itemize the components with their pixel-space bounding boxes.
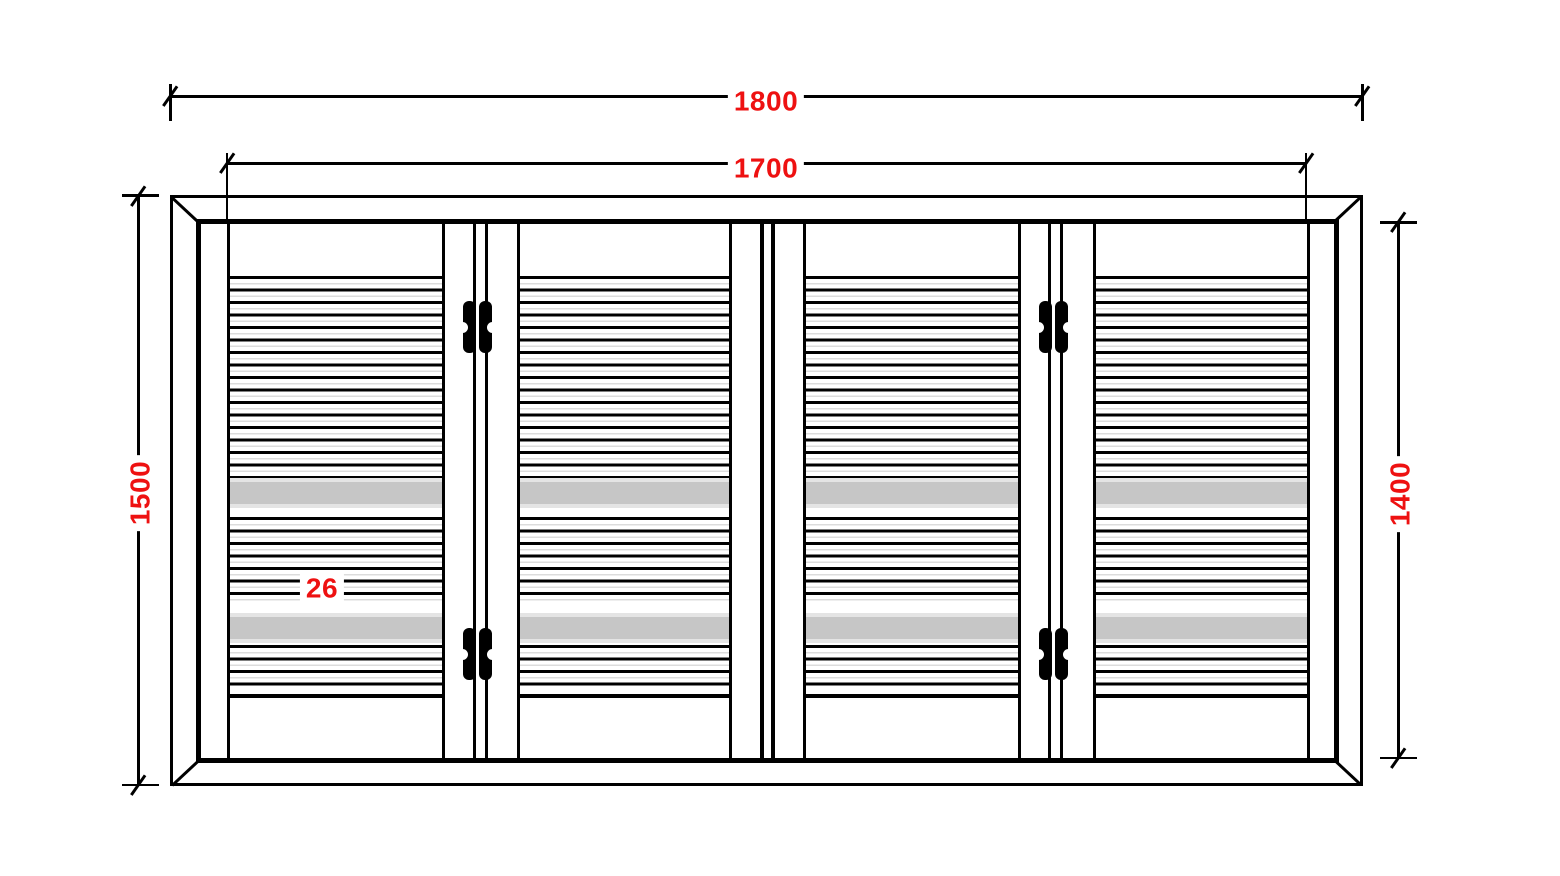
louver-section <box>1096 276 1307 478</box>
panel-stile-line <box>517 219 520 758</box>
shelf-band <box>230 478 442 508</box>
dimension-end-bar <box>1361 84 1364 121</box>
shelf-band <box>520 478 729 508</box>
panel-edge-line <box>771 219 775 758</box>
panel-stile-line <box>227 219 230 758</box>
louver-bottom-rail-line <box>1096 694 1307 698</box>
louver-panel-3-slats <box>806 276 1018 700</box>
shelf-band <box>520 613 729 643</box>
shelf-band <box>1096 613 1307 643</box>
hinge-icon <box>1055 628 1068 680</box>
hinge-icon <box>1039 301 1052 353</box>
window-elevation-drawing: 1800 1700 1500 1400 <box>0 0 1560 876</box>
panel-stile-line <box>729 219 732 758</box>
louver-section <box>806 645 1018 688</box>
louver-section <box>806 517 1018 604</box>
panel-stile-line <box>1307 219 1310 758</box>
louver-section <box>520 645 729 688</box>
panel-stile-line <box>1093 219 1096 758</box>
hinge-icon <box>1055 301 1068 353</box>
dimension-end-bar <box>169 84 172 121</box>
louver-panel-4-slats <box>1096 276 1307 700</box>
shelf-band <box>230 613 442 643</box>
dimension-end-bar <box>122 784 159 787</box>
panel-edge-line <box>760 219 764 758</box>
louver-section <box>230 645 442 688</box>
panel-stile-line <box>803 219 806 758</box>
louver-section <box>520 276 729 478</box>
louver-section <box>520 517 729 604</box>
hinge-icon <box>479 628 492 680</box>
hinge-icon <box>463 301 476 353</box>
louver-bottom-rail-line <box>806 694 1018 698</box>
shelf-band <box>806 613 1018 643</box>
detail-label: 26 <box>300 573 344 602</box>
panel-stile-line <box>442 219 445 758</box>
louver-panel-2-slats <box>520 276 729 700</box>
louver-bottom-rail-line <box>230 694 442 698</box>
louver-section <box>1096 517 1307 604</box>
hinge-icon <box>1039 628 1052 680</box>
panel-stile-line <box>1018 219 1021 758</box>
hinge-icon <box>479 301 492 353</box>
louver-section <box>230 276 442 478</box>
louver-panel-1-slats <box>230 276 442 700</box>
dim-inner-width-label: 1700 <box>728 153 804 182</box>
louver-bottom-rail-line <box>520 694 729 698</box>
shelf-band <box>806 478 1018 508</box>
shelf-band <box>1096 478 1307 508</box>
hinge-icon <box>463 628 476 680</box>
louver-section <box>1096 645 1307 688</box>
dim-overall-width-label: 1800 <box>728 86 804 115</box>
louver-section <box>806 276 1018 478</box>
dim-inner-height-label: 1400 <box>1385 456 1414 532</box>
dim-overall-height-label: 1500 <box>125 455 154 531</box>
